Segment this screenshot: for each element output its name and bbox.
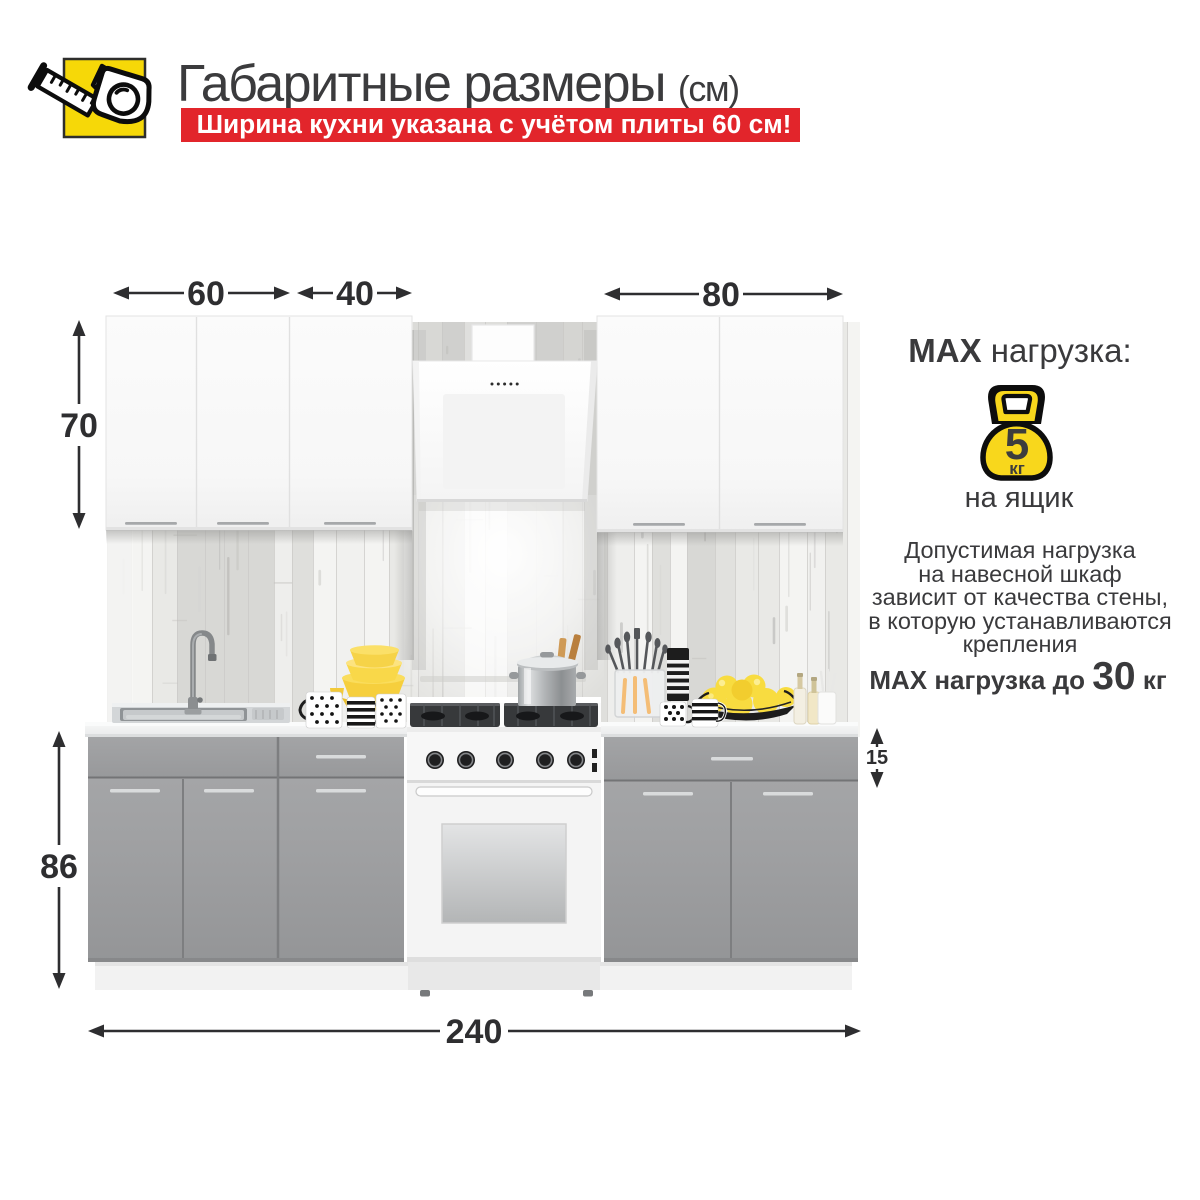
svg-text:60: 60 [187,275,225,313]
svg-text:Допустимая нагрузка: Допустимая нагрузка [904,537,1136,563]
svg-text:кг: кг [1009,459,1025,478]
svg-text:на ящик: на ящик [965,482,1074,514]
svg-text:MAX нагрузка до 30 кг: MAX нагрузка до 30 кг [869,655,1167,698]
svg-text:80: 80 [702,276,740,314]
svg-text:MAX нагрузка:: MAX нагрузка: [908,332,1131,369]
svg-text:240: 240 [446,1013,503,1051]
svg-text:зависит от качества стены,: зависит от качества стены, [872,584,1168,610]
svg-text:86: 86 [40,848,78,886]
svg-text:Габаритные размеры (см): Габаритные размеры (см) [177,55,739,113]
svg-text:крепления: крепления [963,631,1078,657]
svg-text:40: 40 [336,275,374,313]
svg-text:Ширина кухни указана с учётом: Ширина кухни указана с учётом плиты 60 с… [197,109,792,139]
svg-text:70: 70 [60,407,98,445]
svg-text:15: 15 [866,747,888,769]
